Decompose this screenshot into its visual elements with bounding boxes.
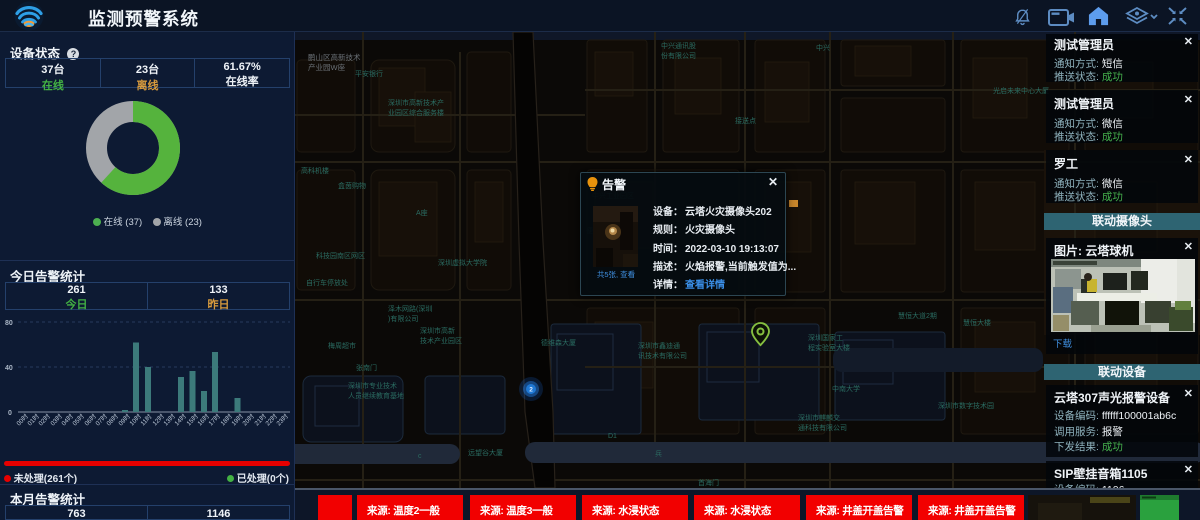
svg-text:兵: 兵: [655, 449, 662, 458]
svg-text:)有限公司: )有限公司: [388, 314, 418, 323]
svg-text:80: 80: [5, 320, 13, 327]
svg-text:份有限公司: 份有限公司: [661, 51, 696, 60]
svg-text:张南门: 张南门: [356, 363, 377, 372]
svg-text:慧恒大楼: 慧恒大楼: [963, 318, 991, 327]
svg-text:技术产业园区: 技术产业园区: [420, 336, 462, 345]
svg-text:平安银行: 平安银行: [355, 69, 383, 78]
svg-text:c: c: [418, 453, 422, 460]
svg-text:盒茵购物: 盒茵购物: [338, 181, 366, 190]
svg-text:深圳市专业技术: 深圳市专业技术: [348, 381, 397, 390]
svg-text:慧恒大道2期: 慧恒大道2期: [898, 311, 937, 320]
svg-text:泽木网路(深圳: 泽木网路(深圳: [388, 304, 432, 313]
svg-text:自行车停放处: 自行车停放处: [306, 278, 348, 287]
svg-text:深圳市数字技术园: 深圳市数字技术园: [938, 401, 994, 410]
svg-text:深圳市高新: 深圳市高新: [420, 326, 455, 335]
svg-text:中南大学: 中南大学: [832, 384, 860, 393]
svg-text:中兴通讯股: 中兴通讯股: [661, 41, 696, 50]
svg-text:40: 40: [5, 365, 13, 372]
svg-text:D1: D1: [608, 433, 617, 440]
svg-text:深圳国家工: 深圳国家工: [808, 333, 843, 342]
svg-text:A座: A座: [416, 208, 428, 217]
svg-text:业园区综合服务楼: 业园区综合服务楼: [388, 108, 444, 117]
svg-text:科技园南区网区: 科技园南区网区: [316, 251, 365, 260]
svg-text:深圳市麒麟交: 深圳市麒麟交: [798, 413, 840, 422]
svg-text:通科技有限公司: 通科技有限公司: [798, 423, 847, 432]
svg-text:程实验室大楼: 程实验室大楼: [808, 343, 850, 352]
svg-text:人员继续教育基地: 人员继续教育基地: [348, 391, 404, 400]
svg-text:深圳市高新技术产: 深圳市高新技术产: [388, 98, 444, 107]
svg-text:首海门: 首海门: [698, 478, 719, 487]
svg-text:0: 0: [8, 410, 12, 417]
svg-text:中兴: 中兴: [816, 43, 830, 52]
svg-text:2: 2: [529, 387, 533, 394]
svg-text:深圳市鑫迪通: 深圳市鑫迪通: [638, 341, 680, 350]
svg-text:深圳虚拟大学院: 深圳虚拟大学院: [438, 258, 487, 267]
svg-text:高科机楼: 高科机楼: [301, 166, 329, 175]
svg-text:鹏山区高新技术: 鹏山区高新技术: [308, 52, 361, 62]
svg-text:光启未来中心大厦: 光启未来中心大厦: [993, 86, 1049, 95]
svg-text:讯技术有限公司: 讯技术有限公司: [638, 351, 687, 360]
svg-text:德维森大厦: 德维森大厦: [541, 338, 576, 347]
svg-text:接送点: 接送点: [735, 116, 756, 125]
svg-text:梅周超市: 梅周超市: [328, 341, 356, 350]
svg-text:产业园W座: 产业园W座: [308, 62, 346, 72]
svg-text:远望谷大厦: 远望谷大厦: [468, 448, 503, 457]
